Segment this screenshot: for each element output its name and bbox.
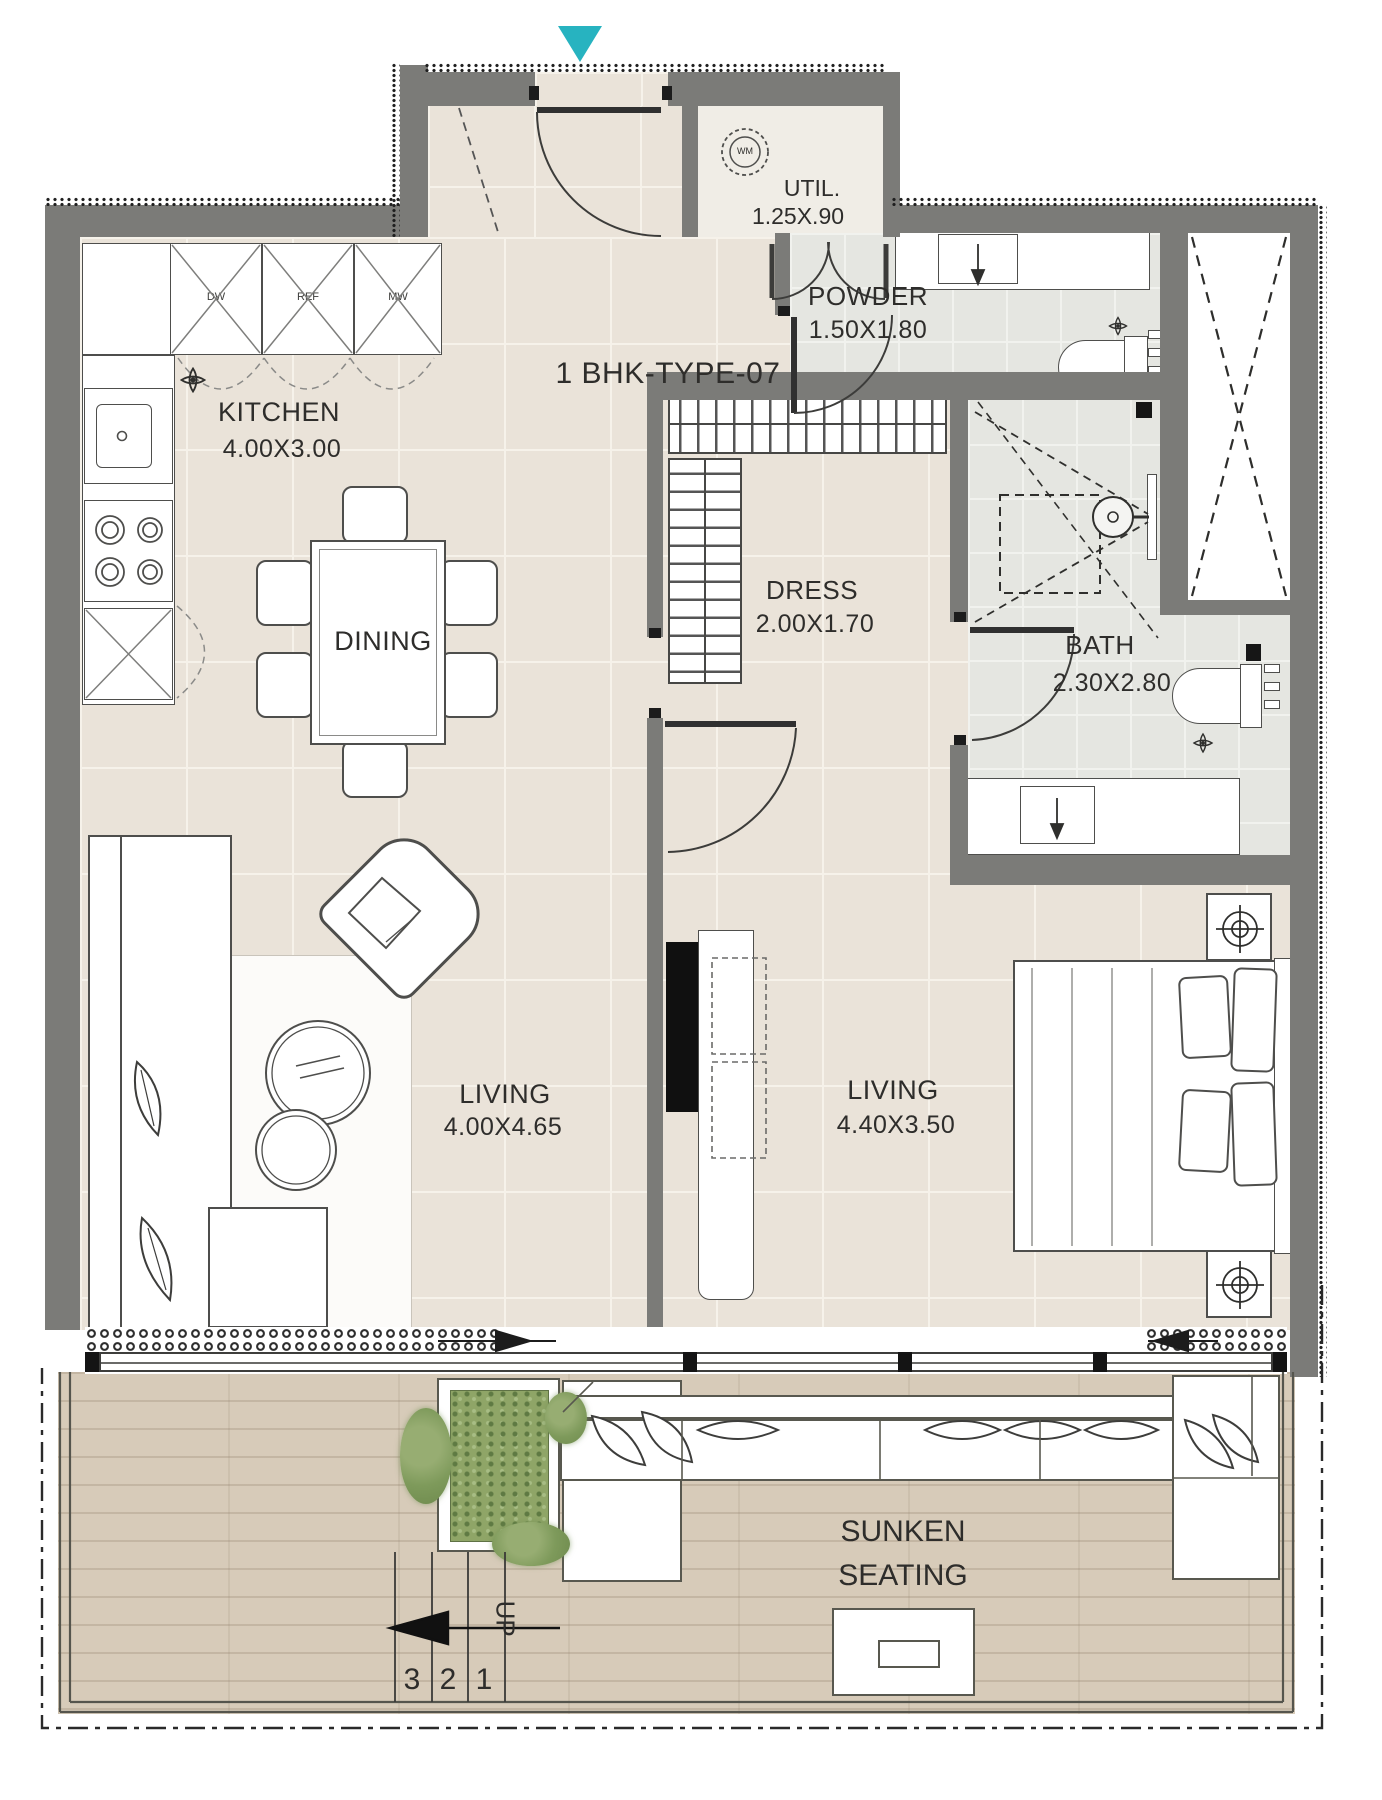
wall xyxy=(668,72,883,106)
stairs-up-label: UP xyxy=(491,1596,518,1642)
wall xyxy=(647,718,663,1330)
dress-dims: 2.00X1.70 xyxy=(735,611,895,637)
wall xyxy=(45,205,80,1330)
stair-tread-2: 2 xyxy=(432,1664,464,1696)
wall xyxy=(647,372,663,637)
dining-chair xyxy=(256,560,314,626)
wall xyxy=(1160,600,1290,615)
foliage xyxy=(492,1522,570,1566)
sunken-label-1: SUNKEN xyxy=(813,1516,993,1548)
utility-dims: 1.25X.90 xyxy=(718,204,878,228)
door-jamb xyxy=(954,735,966,745)
towel-bar xyxy=(1264,682,1280,691)
stove xyxy=(84,500,173,602)
living-label: LIVING xyxy=(425,1080,585,1108)
sunken-label-2: SEATING xyxy=(813,1560,993,1592)
utility-label: UTIL. xyxy=(732,176,892,200)
exterior-hatch xyxy=(45,197,400,206)
bed-pillow xyxy=(1178,1089,1232,1174)
powder-label: POWDER xyxy=(788,283,948,310)
powder-dims: 1.50X1.80 xyxy=(788,317,948,343)
service-shaft xyxy=(1188,233,1290,600)
living-dims: 4.00X4.65 xyxy=(423,1114,583,1140)
plan-title: 1 BHK-TYPE-07 xyxy=(518,358,818,390)
sofa-chaise xyxy=(208,1207,328,1328)
microwave-label: MW xyxy=(368,292,428,304)
dining-chair xyxy=(342,740,408,798)
sofa-backrest xyxy=(88,835,122,1329)
door-jamb xyxy=(954,612,966,622)
window-mullion xyxy=(898,1352,912,1372)
kitchen-lower-cabinet xyxy=(84,608,173,700)
bedroom-living-dims: 4.40X3.50 xyxy=(816,1112,976,1138)
kitchen-dims: 4.00X3.00 xyxy=(202,436,362,462)
bath-vanity xyxy=(955,778,1240,855)
window-mullion xyxy=(1093,1352,1107,1372)
window-mullion xyxy=(683,1352,697,1372)
dishwasher-label: DW xyxy=(186,292,246,304)
window-sill-hatch xyxy=(85,1327,498,1353)
door-jamb xyxy=(649,708,661,718)
balcony-sofa-seat xyxy=(560,1419,1180,1481)
wall xyxy=(950,855,1318,885)
towel-bar xyxy=(1264,700,1280,709)
dining-chair xyxy=(342,486,408,544)
tv-console xyxy=(698,930,754,1300)
wall xyxy=(682,106,698,237)
balcony-sofa-right xyxy=(1172,1375,1280,1580)
nightstand xyxy=(1206,1250,1272,1318)
foliage xyxy=(400,1408,452,1504)
exterior-hatch xyxy=(391,63,400,237)
floor-plan: DW REF MW xyxy=(0,0,1382,1800)
wall xyxy=(45,205,400,237)
powder-basin xyxy=(938,234,1018,284)
exterior-hatch xyxy=(424,63,886,72)
bed-pillow xyxy=(1178,975,1232,1060)
closet-rail xyxy=(670,423,945,425)
dining-chair xyxy=(440,652,498,718)
bath-toilet-tank xyxy=(1240,664,1262,728)
closet-rail xyxy=(704,460,706,682)
exterior-hatch xyxy=(1318,205,1327,1377)
balcony-coffee-table xyxy=(832,1608,975,1696)
stair-tread-1: 1 xyxy=(468,1664,500,1696)
foliage xyxy=(545,1392,587,1444)
wall xyxy=(1290,233,1318,1377)
nightstand xyxy=(1206,893,1272,961)
door-jamb xyxy=(649,628,661,638)
bed-pillow xyxy=(1230,1081,1278,1186)
dining-label: DINING xyxy=(303,627,463,655)
bath-label: BATH xyxy=(1020,632,1180,659)
bath-dims: 2.30X2.80 xyxy=(1032,670,1192,696)
wall xyxy=(1160,233,1188,615)
dining-chair xyxy=(256,652,314,718)
stair-tread-3: 3 xyxy=(396,1664,428,1696)
kitchen-sink-basin xyxy=(96,404,152,468)
kitchen-label: KITCHEN xyxy=(199,398,359,426)
refrigerator-label: REF xyxy=(278,292,338,304)
window-mullion xyxy=(85,1352,99,1372)
balcony-sofa-backrest xyxy=(560,1395,1180,1419)
entry-arrow-icon xyxy=(558,26,602,62)
shower-panel xyxy=(1147,474,1157,560)
paper-holder xyxy=(1246,644,1261,661)
planter-shrubs xyxy=(450,1390,549,1542)
entry-door-opening xyxy=(535,72,668,106)
wall xyxy=(883,72,900,237)
wall xyxy=(400,65,428,237)
wall xyxy=(950,390,968,622)
bed-pillow xyxy=(1230,967,1278,1072)
wall xyxy=(900,205,1318,233)
wall xyxy=(428,72,535,106)
dress-label: DRESS xyxy=(732,577,892,604)
towel-bar xyxy=(1264,664,1280,673)
door-jamb xyxy=(662,86,672,100)
powder-vanity xyxy=(895,228,1150,290)
wall xyxy=(950,745,968,855)
paper-holder xyxy=(1136,402,1152,418)
bedroom-living-label: LIVING xyxy=(813,1076,973,1104)
bath-basin xyxy=(1020,786,1095,844)
washing-machine-label: WM xyxy=(725,147,765,156)
door-jamb xyxy=(529,86,539,100)
exterior-hatch xyxy=(891,197,1318,206)
window-sill-hatch xyxy=(1145,1327,1287,1353)
tv-screen xyxy=(666,942,698,1112)
window-mullion xyxy=(1273,1352,1287,1372)
dining-chair xyxy=(440,560,498,626)
